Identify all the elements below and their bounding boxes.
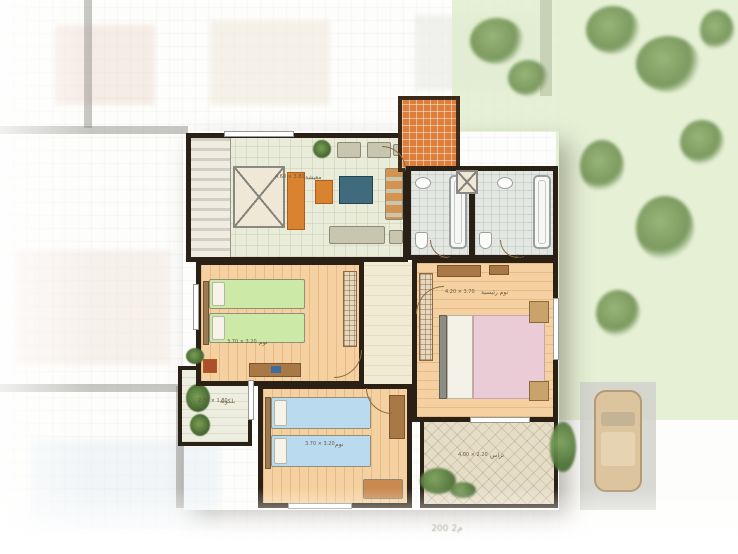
nightstand	[529, 381, 549, 401]
car-top-view	[594, 390, 642, 492]
window	[224, 131, 294, 137]
window	[553, 298, 559, 360]
bed-single	[209, 279, 305, 309]
bed-single	[271, 397, 371, 429]
room-living: معيشة 4.60 × 3.80	[186, 133, 408, 262]
sofa	[329, 226, 385, 244]
sink	[497, 177, 513, 189]
shaft-cross-lines	[458, 172, 476, 192]
wardrobe	[343, 271, 357, 347]
tree	[586, 6, 640, 54]
tree	[636, 196, 694, 260]
room-master-bedroom: نوم رئيسية 4.20 × 3.70	[412, 258, 558, 422]
plant	[190, 414, 210, 436]
armchair	[389, 230, 403, 244]
pillow	[212, 282, 225, 306]
chair	[203, 359, 217, 373]
tree	[580, 140, 624, 192]
pillow	[212, 316, 225, 340]
window	[470, 417, 530, 423]
car-roof	[601, 432, 635, 466]
duct-shaft	[456, 170, 478, 194]
armchair-orange	[315, 180, 333, 204]
background-neighbor-wall	[0, 126, 188, 134]
tree	[508, 60, 548, 96]
bed-single	[209, 313, 305, 343]
shrub	[550, 422, 576, 472]
desk-object	[271, 366, 281, 373]
sink	[415, 177, 431, 189]
staircase	[191, 138, 231, 257]
room-name: نوم	[259, 339, 267, 347]
coffee-table	[339, 176, 373, 204]
bathtub	[533, 175, 551, 249]
shrub	[450, 482, 476, 498]
sofa	[385, 168, 403, 220]
background-faded-room	[55, 25, 155, 105]
room-dims: 4.60 × 3.80	[275, 174, 305, 181]
tree	[470, 18, 524, 64]
tree	[636, 36, 700, 92]
plant	[313, 140, 331, 158]
room-dims: 3.70 × 3.20	[305, 441, 335, 448]
background-neighbor-wall	[84, 0, 92, 128]
plant	[186, 348, 204, 364]
room-name: نوم	[335, 441, 343, 449]
room-terrace: تراس 4.00 × 2.20	[420, 418, 558, 508]
dresser	[489, 265, 509, 275]
tree	[596, 290, 640, 336]
bed-single	[271, 435, 371, 467]
room-name: تراس	[490, 452, 504, 460]
dresser	[437, 265, 481, 277]
window	[193, 284, 199, 330]
pillow	[274, 438, 287, 464]
car-windshield	[601, 412, 635, 426]
room-dims: 2.00 × 1.80	[198, 398, 228, 405]
wardrobe	[419, 273, 433, 361]
room-dims: 4.00 × 2.20	[458, 452, 488, 459]
room-entrance	[398, 96, 460, 172]
pillow	[274, 400, 287, 426]
room-dims: 3.70 × 3.20	[227, 339, 257, 346]
background-faded-room	[210, 20, 330, 105]
window	[288, 503, 352, 509]
tree	[680, 120, 724, 164]
window	[248, 380, 254, 420]
room-dims: 4.20 × 3.70	[445, 289, 475, 296]
room-name: معيشة	[305, 174, 322, 182]
armchair	[337, 142, 361, 158]
background-faded-room	[15, 250, 170, 365]
sofa	[363, 479, 403, 499]
room-corridor	[364, 262, 412, 386]
plan-caption: 200 م2	[382, 524, 512, 534]
room-name: نوم رئيسية	[481, 289, 508, 297]
tree	[700, 10, 734, 50]
floor-plan-canvas: معيشة 4.60 × 3.80 حمام حمام نوم 3.70 ×	[0, 0, 738, 554]
bed-pillows	[447, 315, 473, 399]
nightstand	[529, 301, 549, 323]
toilet	[479, 232, 492, 249]
toilet	[415, 232, 428, 249]
background-neighbor-wall	[0, 384, 180, 392]
sideboard	[287, 172, 305, 230]
bed-headboard	[439, 315, 447, 399]
